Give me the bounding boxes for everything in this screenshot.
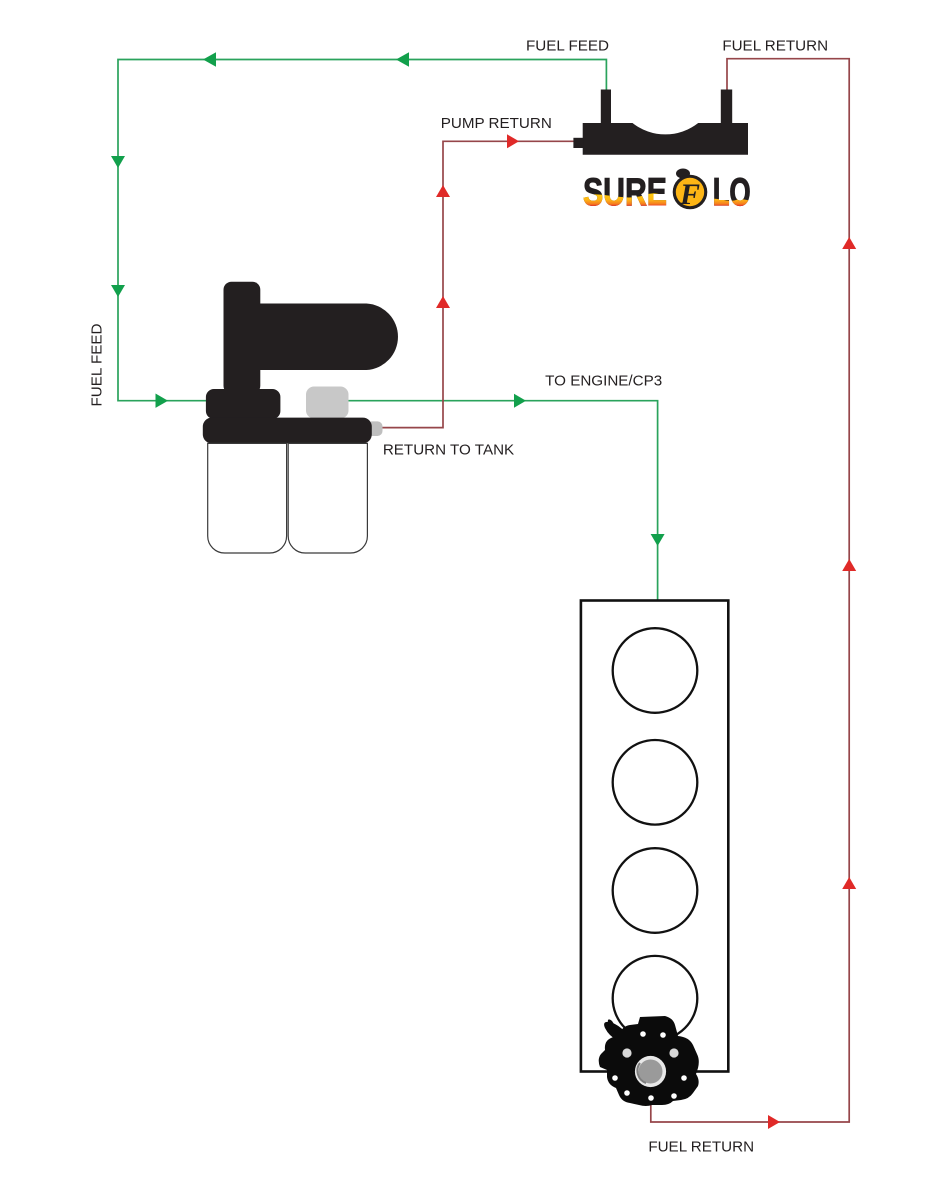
svg-text:FUEL FEED: FUEL FEED	[89, 323, 106, 406]
svg-text:FUEL FEED: FUEL FEED	[526, 37, 609, 54]
svg-text:RETURN TO TANK: RETURN TO TANK	[383, 441, 514, 458]
svg-text:FUEL RETURN: FUEL RETURN	[722, 37, 828, 54]
svg-text:FUEL RETURN: FUEL RETURN	[648, 1139, 754, 1156]
svg-text:PUMP RETURN: PUMP RETURN	[441, 115, 552, 132]
svg-text:TO ENGINE/CP3: TO ENGINE/CP3	[545, 372, 662, 389]
svg-text:F: F	[679, 178, 700, 211]
